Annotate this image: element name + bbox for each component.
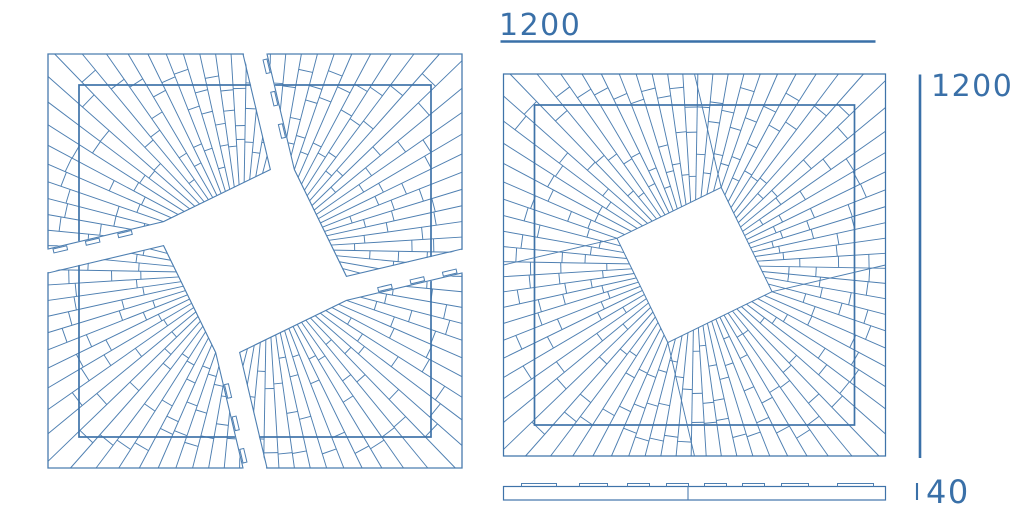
panel-drawing-svg: 1200 1200 40 bbox=[0, 0, 1024, 518]
profile-outline bbox=[504, 487, 886, 501]
exploded-view bbox=[48, 54, 462, 468]
width-dimension-label: 1200 bbox=[499, 8, 581, 43]
center-square-hole bbox=[188, 194, 347, 353]
thickness-dimension-label: 40 bbox=[926, 473, 970, 511]
sunburst-panel bbox=[504, 74, 886, 456]
connector-tabs bbox=[378, 269, 457, 291]
inner-border bbox=[103, 109, 431, 437]
inner-border bbox=[79, 109, 407, 437]
connector-tabs bbox=[263, 59, 285, 138]
center-square-hole bbox=[188, 170, 347, 329]
center-square-hole bbox=[164, 194, 323, 353]
side-profile-view bbox=[504, 484, 886, 501]
plank-joints bbox=[59, 69, 426, 430]
plank-joints bbox=[83, 69, 450, 430]
inner-border bbox=[103, 85, 431, 413]
connector-tabs bbox=[53, 231, 132, 253]
inner-border bbox=[79, 85, 407, 413]
center-square-hole bbox=[164, 170, 323, 329]
plank-joints bbox=[59, 93, 426, 454]
technical-drawing-page: 1200 1200 40 bbox=[0, 0, 1024, 518]
center-square-hole bbox=[617, 187, 772, 342]
height-dimension-label: 1200 bbox=[931, 69, 1013, 104]
plank-joints bbox=[83, 93, 450, 454]
assembled-view bbox=[504, 74, 886, 456]
connector-tabs bbox=[225, 384, 247, 463]
